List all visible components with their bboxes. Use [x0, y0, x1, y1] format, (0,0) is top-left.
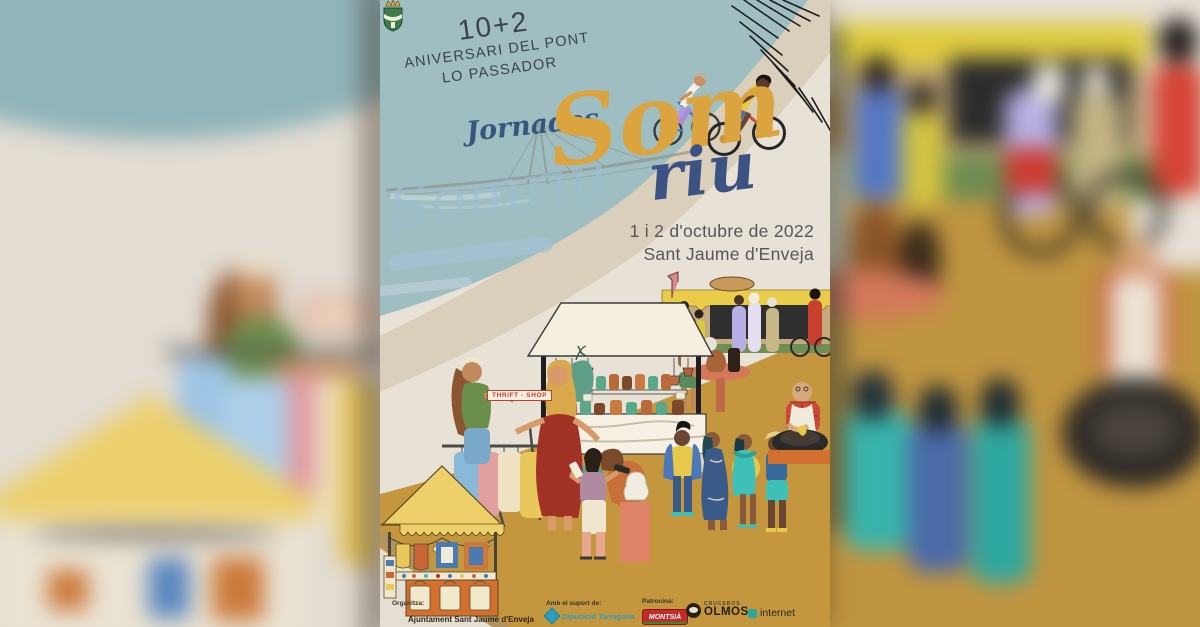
sponsor-label: Patrocina:: [642, 598, 674, 605]
event-poster: 10+2 ANIVERSARI DEL PONT LO PASSADOR Som…: [380, 0, 830, 627]
blurred-backdrop-left-art: [0, 0, 380, 627]
cruceros-olmos-logo: CRUCEROS OLMOS: [686, 602, 749, 619]
diputacio-diamond-icon: [544, 608, 561, 625]
diputacio-logo: Diputació Tarragona: [546, 610, 635, 622]
ajuntament-crest-logo: [380, 0, 406, 32]
title-word-riu: riu: [644, 132, 759, 211]
organizer-label: Organitza:: [392, 600, 424, 607]
support-label: Amb el suport de:: [546, 600, 601, 607]
blurred-backdrop-right-art: [830, 0, 1200, 627]
support-name: Diputació Tarragona: [562, 612, 635, 621]
event-place: Sant Jaume d'Enveja: [630, 244, 814, 265]
organizer-name: Ajuntament Sant Jaume d'Enveja: [408, 615, 534, 624]
cruceros-emblem-icon: [686, 603, 701, 618]
internet-logo: internet: [748, 607, 795, 619]
blurred-backdrop-left: [0, 0, 380, 627]
cruceros-main-text: OLMOS: [704, 607, 749, 619]
internet-square-icon: [748, 609, 757, 618]
event-date-place: 1 i 2 d'octubre de 2022 Sant Jaume d'Env…: [630, 221, 814, 265]
event-date: 1 i 2 d'octubre de 2022: [630, 221, 814, 242]
internet-text: internet: [760, 607, 795, 619]
thrift-shop-sign: THRIFT - SHOP: [487, 390, 552, 401]
blurred-backdrop-right: [830, 0, 1200, 627]
montsia-logo: MONTSIÀ: [642, 609, 688, 625]
poster-collage: 10+2 ANIVERSARI DEL PONT LO PASSADOR Som…: [0, 0, 1200, 627]
